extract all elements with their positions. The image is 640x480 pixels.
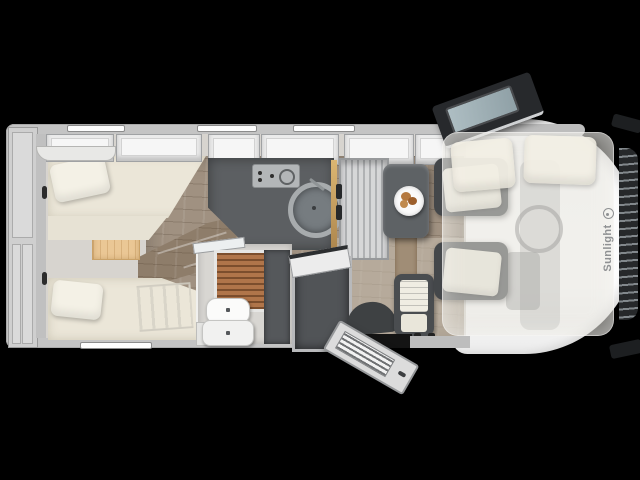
side-mirror-bottom-icon <box>609 339 640 359</box>
storage-slot <box>12 244 21 344</box>
brand-label: Sunlight <box>602 224 614 271</box>
wall-hook-icon <box>42 186 47 199</box>
toilet-base <box>202 320 254 346</box>
stove-knob <box>258 171 262 175</box>
pillow <box>50 279 103 320</box>
overhead-cabinet <box>116 134 202 162</box>
fridge-handle <box>336 184 342 199</box>
food-plate-icon <box>394 186 424 216</box>
window-bottom <box>80 342 152 349</box>
cabinet-door <box>349 138 409 159</box>
stove-icon <box>252 164 300 188</box>
cabinet-door <box>266 138 334 159</box>
drain <box>312 206 316 210</box>
stove-knob <box>270 174 274 178</box>
sun-circle-logo-icon <box>603 208 614 219</box>
drop-down-bed-pillow <box>523 135 597 185</box>
storage-slot <box>22 244 33 344</box>
window-top <box>67 125 125 132</box>
bed-ladder-icon <box>136 282 193 332</box>
window-top <box>197 125 257 132</box>
cabinet-door <box>213 138 255 159</box>
dinette-seat <box>394 274 434 336</box>
storage-shelf <box>12 132 33 238</box>
rear-inner-wall <box>36 134 46 338</box>
windshield <box>619 148 638 320</box>
window-top <box>293 125 355 132</box>
bottom-wall-segment <box>410 336 470 348</box>
rear-storage-compartment <box>8 127 38 348</box>
motorhome-floorplan: Sunlight <box>0 0 640 480</box>
cabinet-door <box>121 138 197 156</box>
curved-shelf <box>36 146 116 161</box>
windshield-reflection <box>619 148 638 320</box>
wall-hook-icon <box>42 272 47 285</box>
fridge-handle <box>336 205 342 220</box>
bathroom-cabinet <box>264 250 290 344</box>
toilet-button <box>226 308 230 312</box>
seat-cushion-striped <box>400 280 428 312</box>
brand-mark: Sunlight <box>600 192 616 288</box>
food <box>400 200 408 208</box>
twin-bed-top-corner <box>48 216 168 240</box>
drop-down-bed-pillow <box>450 137 516 192</box>
seat-cushion <box>401 314 427 332</box>
stove-knob <box>258 178 262 182</box>
entry-door-handle <box>397 370 406 377</box>
stove-burner <box>279 169 295 185</box>
side-mirror-top-icon <box>611 113 640 133</box>
food <box>408 197 417 205</box>
toilet-button <box>226 331 230 335</box>
